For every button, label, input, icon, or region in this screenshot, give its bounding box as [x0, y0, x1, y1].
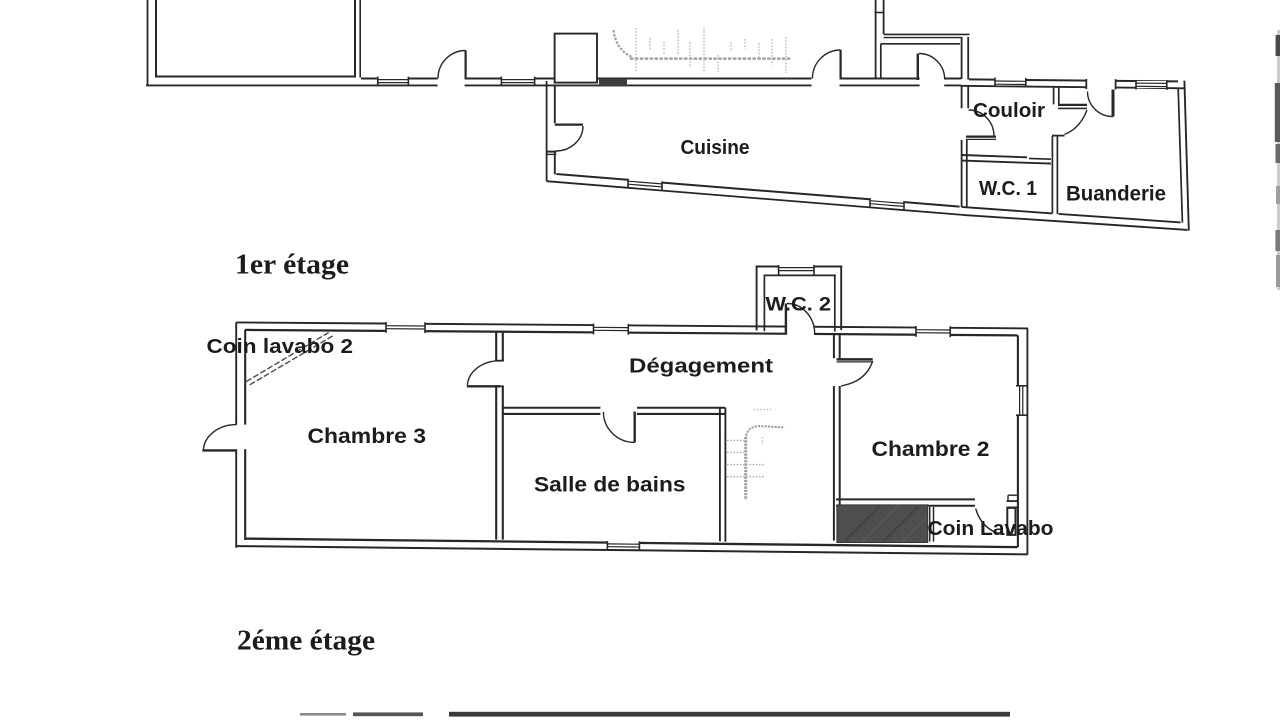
svg-text:W.C. 1: W.C. 1 [979, 177, 1037, 200]
svg-text:2éme étage: 2éme étage [237, 626, 375, 657]
svg-text:Dégagement: Dégagement [629, 356, 773, 378]
svg-text:1er étage: 1er étage [235, 250, 349, 281]
svg-text:Chambre 2: Chambre 2 [872, 438, 990, 461]
svg-text:Cuisine: Cuisine [681, 137, 750, 159]
svg-text:Couloir: Couloir [973, 100, 1045, 122]
svg-text:W.C. 2: W.C. 2 [766, 294, 832, 316]
svg-text:Salle de bains: Salle de bains [534, 474, 686, 497]
svg-text:Buanderie: Buanderie [1066, 183, 1166, 206]
svg-text:Chambre 3: Chambre 3 [308, 425, 427, 448]
svg-text:Coin Lavabo: Coin Lavabo [928, 517, 1054, 540]
svg-text:Coin lavabo 2: Coin lavabo 2 [207, 336, 354, 358]
